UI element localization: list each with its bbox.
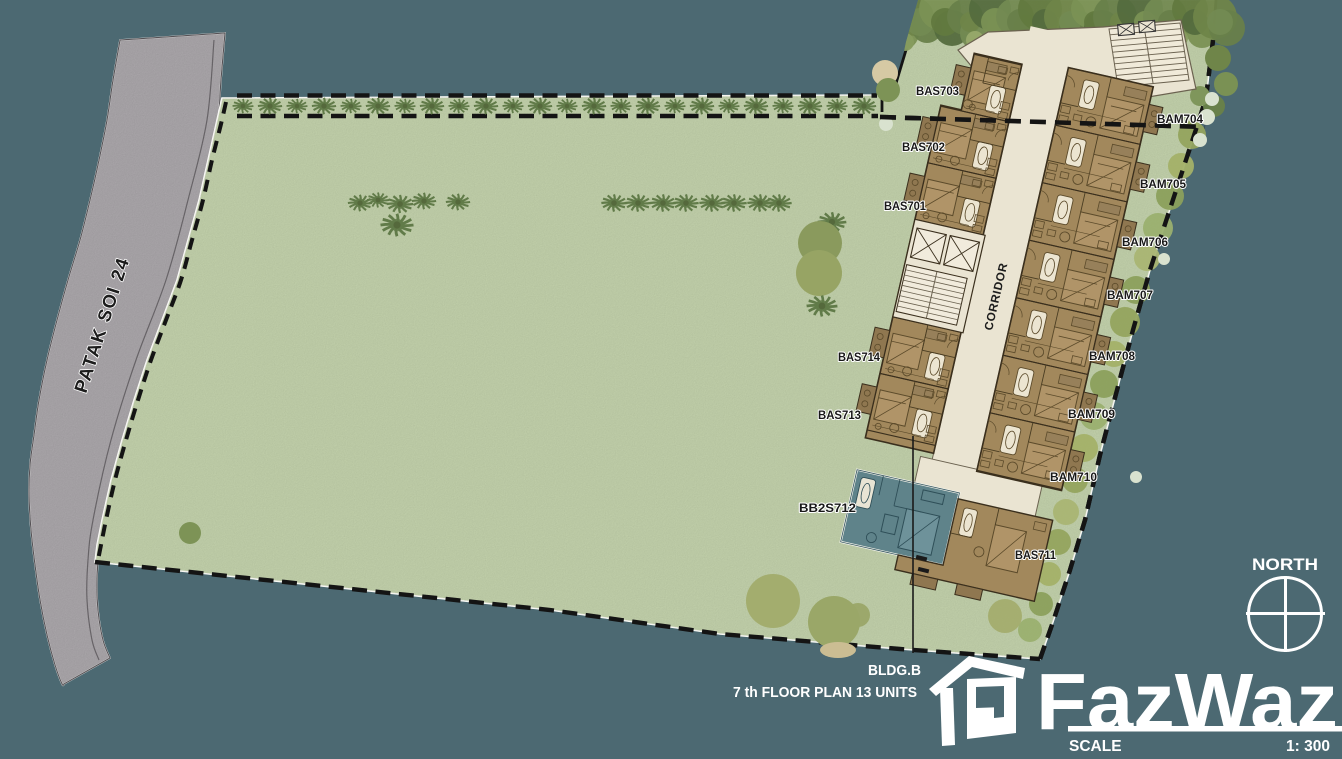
svg-text:BAM710: BAM710 xyxy=(1050,470,1097,484)
svg-text:BAM709: BAM709 xyxy=(1068,407,1115,421)
svg-text:SCALE: SCALE xyxy=(1069,738,1122,754)
svg-text:BAS703: BAS703 xyxy=(916,84,959,98)
svg-text:BAS711: BAS711 xyxy=(1015,548,1056,562)
svg-text:BAS702: BAS702 xyxy=(902,140,945,154)
svg-text:BAM705: BAM705 xyxy=(1140,177,1186,191)
svg-text:BAM708: BAM708 xyxy=(1089,349,1135,363)
svg-text:BAS701: BAS701 xyxy=(884,199,926,213)
svg-text:FazWaz: FazWaz xyxy=(1036,657,1338,746)
svg-text:BB2S712: BB2S712 xyxy=(799,501,856,515)
svg-text:BAM704: BAM704 xyxy=(1157,112,1203,126)
svg-text:7 th FLOOR PLAN 13 UNITS: 7 th FLOOR PLAN 13 UNITS xyxy=(733,685,917,701)
svg-text:BAS713: BAS713 xyxy=(818,408,861,422)
svg-text:1: 300: 1: 300 xyxy=(1286,738,1330,754)
svg-text:BAM707: BAM707 xyxy=(1107,288,1153,302)
svg-text:BLDG.B: BLDG.B xyxy=(868,663,921,679)
svg-text:BAM706: BAM706 xyxy=(1122,235,1168,249)
svg-text:NORTH: NORTH xyxy=(1252,555,1318,574)
svg-text:BAS714: BAS714 xyxy=(838,350,880,364)
